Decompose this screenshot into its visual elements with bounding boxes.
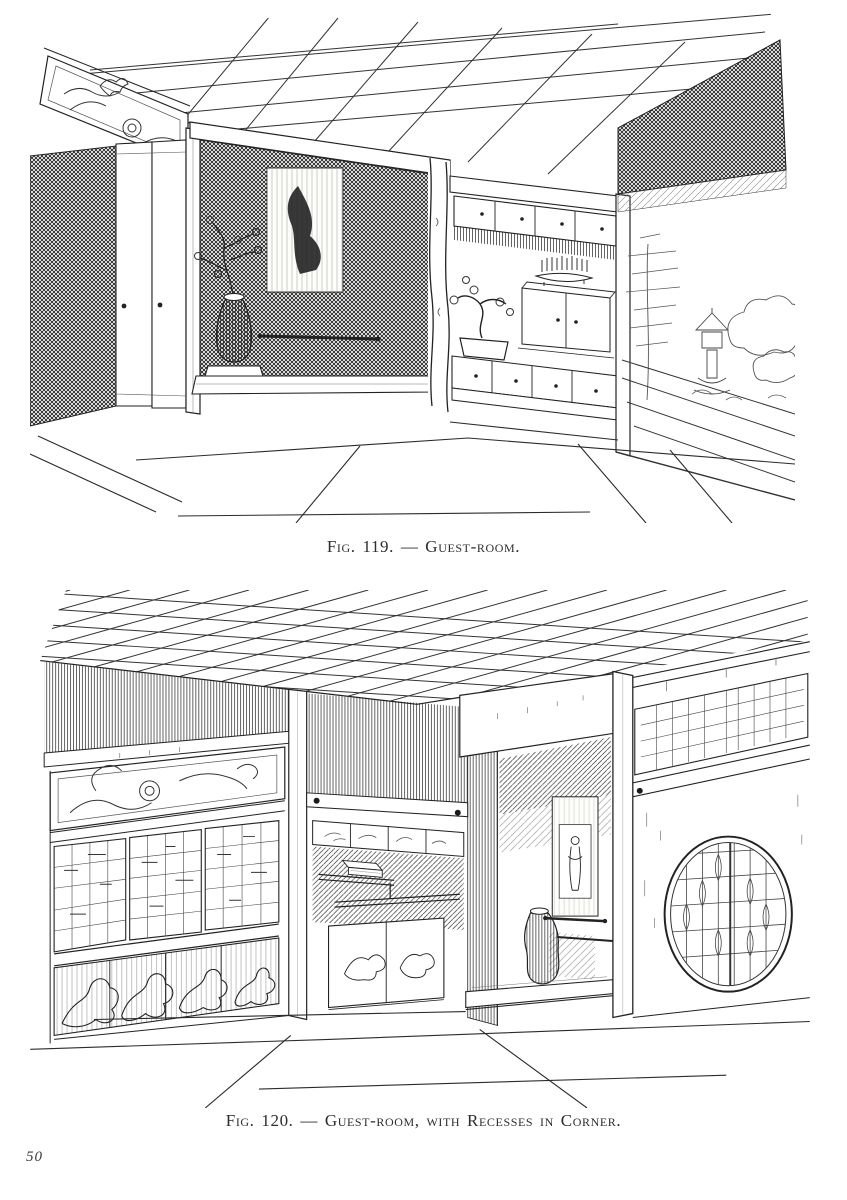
tatami-floor (30, 422, 795, 523)
figure-119-illustration (30, 8, 795, 523)
left-wall (44, 662, 291, 1044)
figure-120-caption: Fig. 120. — Guest-room, with Recesses in… (0, 1111, 847, 1131)
hanging-scroll (543, 797, 607, 923)
shoji-windows (54, 821, 279, 952)
book-page: Fig. 119. — Guest-room. (0, 0, 847, 1200)
bonsai-tree (450, 277, 514, 361)
tokonoma-alcove (192, 140, 434, 394)
lattice-window-band (635, 673, 808, 774)
round-window (665, 835, 792, 994)
left-wall (30, 48, 200, 426)
stone-lantern (694, 308, 730, 394)
engraving-guest-room (30, 8, 795, 523)
right-wall (633, 642, 810, 1018)
figure-120-illustration (28, 586, 818, 1108)
painted-panels (54, 938, 279, 1035)
shelf-recess (450, 176, 630, 456)
tray-with-grass (536, 256, 592, 286)
figure-119-caption: Fig. 119. — Guest-room. (0, 537, 847, 557)
fusuma-screen (152, 140, 186, 408)
engraving-guest-room-recesses (28, 586, 818, 1108)
dark-overhang (618, 40, 786, 194)
dark-doorway (30, 146, 116, 426)
page-number: 50 (26, 1149, 43, 1166)
tokobashira-post (428, 158, 450, 412)
veranda-and-garden (616, 40, 795, 500)
fusuma-screen (116, 142, 152, 406)
